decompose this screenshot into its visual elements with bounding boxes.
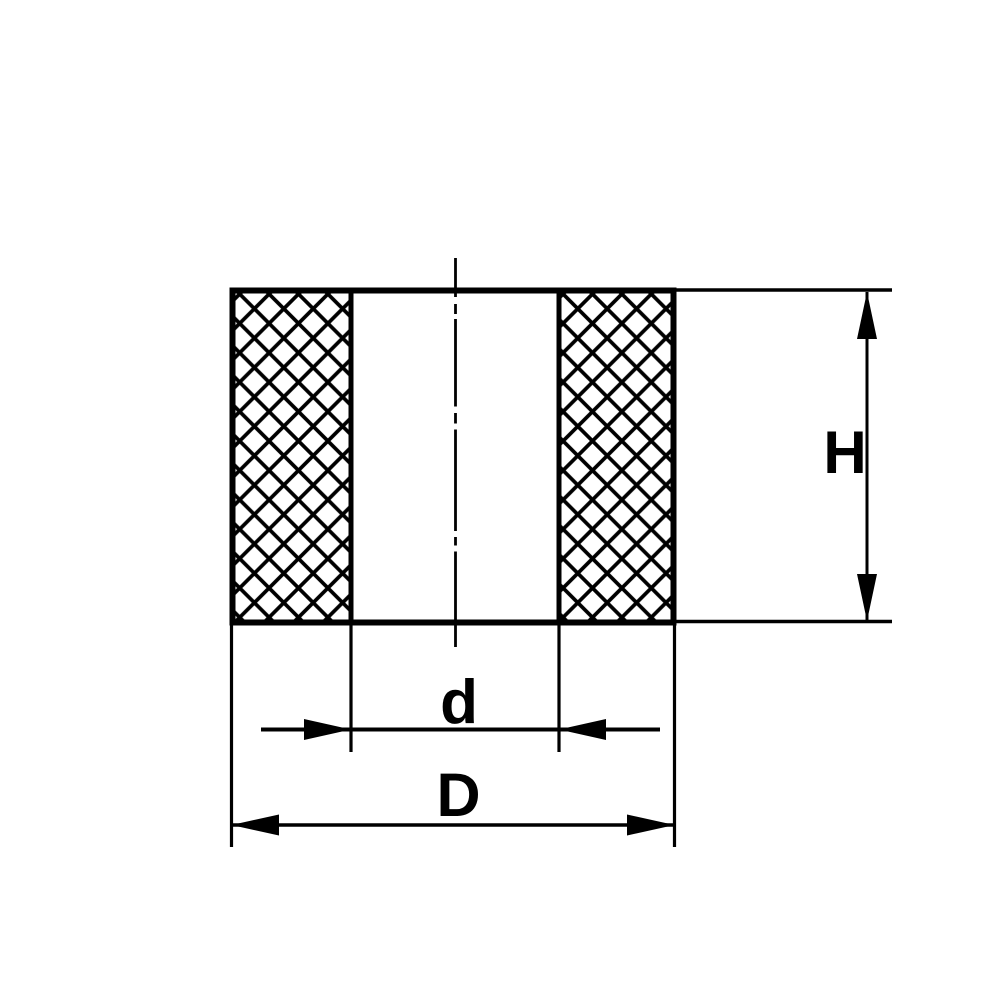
svg-text:d: d xyxy=(440,668,478,737)
svg-text:H: H xyxy=(823,419,866,486)
svg-text:D: D xyxy=(436,761,480,829)
